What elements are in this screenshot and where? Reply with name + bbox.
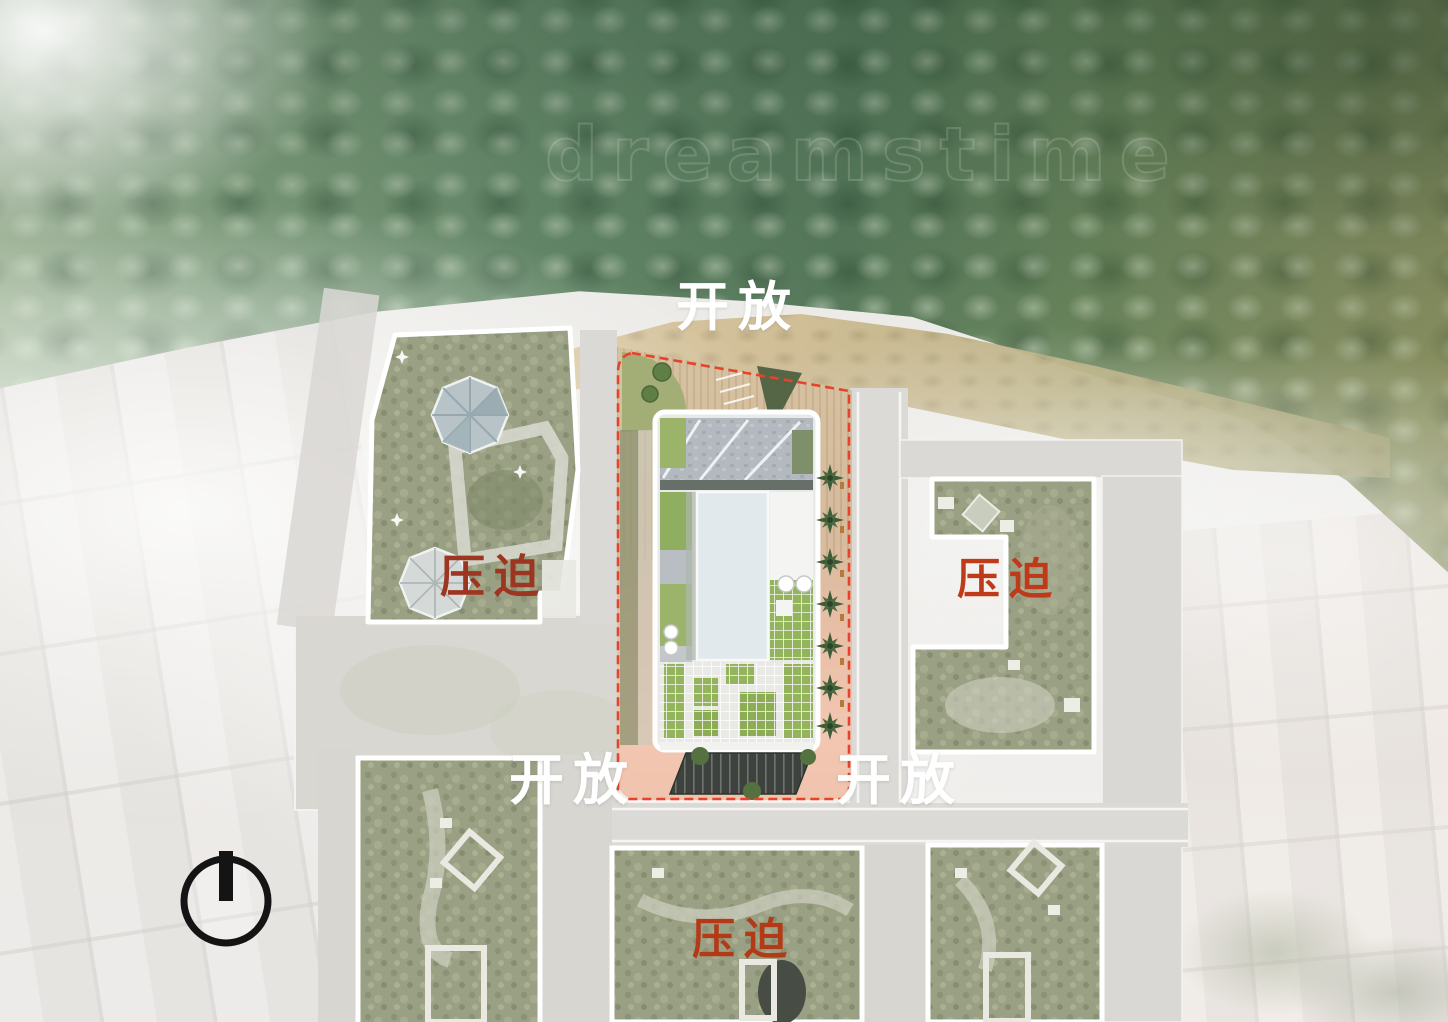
tree (800, 749, 816, 765)
site-analysis-plan: dreamstime 开放 压迫 压迫 开放 开放 压迫 (0, 0, 1448, 1022)
label-open-north: 开放 (676, 281, 800, 334)
label-oppress-west: 压迫 (440, 554, 548, 599)
parcel-southeast (928, 843, 1102, 1022)
courtyard-skylight (697, 492, 768, 660)
tree (691, 747, 709, 765)
tree (642, 386, 658, 402)
white-roof-terrace (770, 492, 813, 580)
roof-vent (664, 641, 678, 655)
label-open-southeast: 开放 (836, 753, 964, 808)
canopy-band (660, 480, 813, 490)
north-arrow-needle (219, 851, 233, 901)
road-northwest-diagonal (277, 288, 380, 632)
building-roof-plan (655, 412, 818, 750)
label-oppress-east: 压迫 (957, 559, 1061, 602)
path-strip (638, 430, 652, 745)
octagon-pavilion-1 (432, 377, 508, 453)
parcel-east (913, 479, 1094, 752)
south-roof-garden-grid (660, 662, 813, 742)
road-north-of-east-parcel (900, 440, 1182, 478)
road-east-vertical (1102, 476, 1182, 1022)
label-open-southwest: 开放 (509, 753, 637, 808)
road-southwest-vertical (318, 748, 358, 1022)
north-arrow (184, 851, 268, 943)
roof-vent (796, 576, 812, 592)
plan-vector-layer (0, 0, 1448, 1022)
roof-vent (778, 576, 794, 592)
roof-garden (660, 418, 686, 468)
road-site-west (580, 330, 617, 625)
south-terrace-band (660, 742, 813, 750)
label-oppress-south: 压迫 (692, 919, 796, 962)
hedge-strip (620, 430, 638, 745)
roof-garden (792, 430, 813, 474)
roof-vent (664, 625, 678, 639)
tree (653, 363, 671, 381)
tree (743, 782, 761, 800)
road-between-south-parcels-2 (862, 845, 928, 1022)
parking-court (670, 747, 816, 800)
pond (758, 960, 806, 1022)
